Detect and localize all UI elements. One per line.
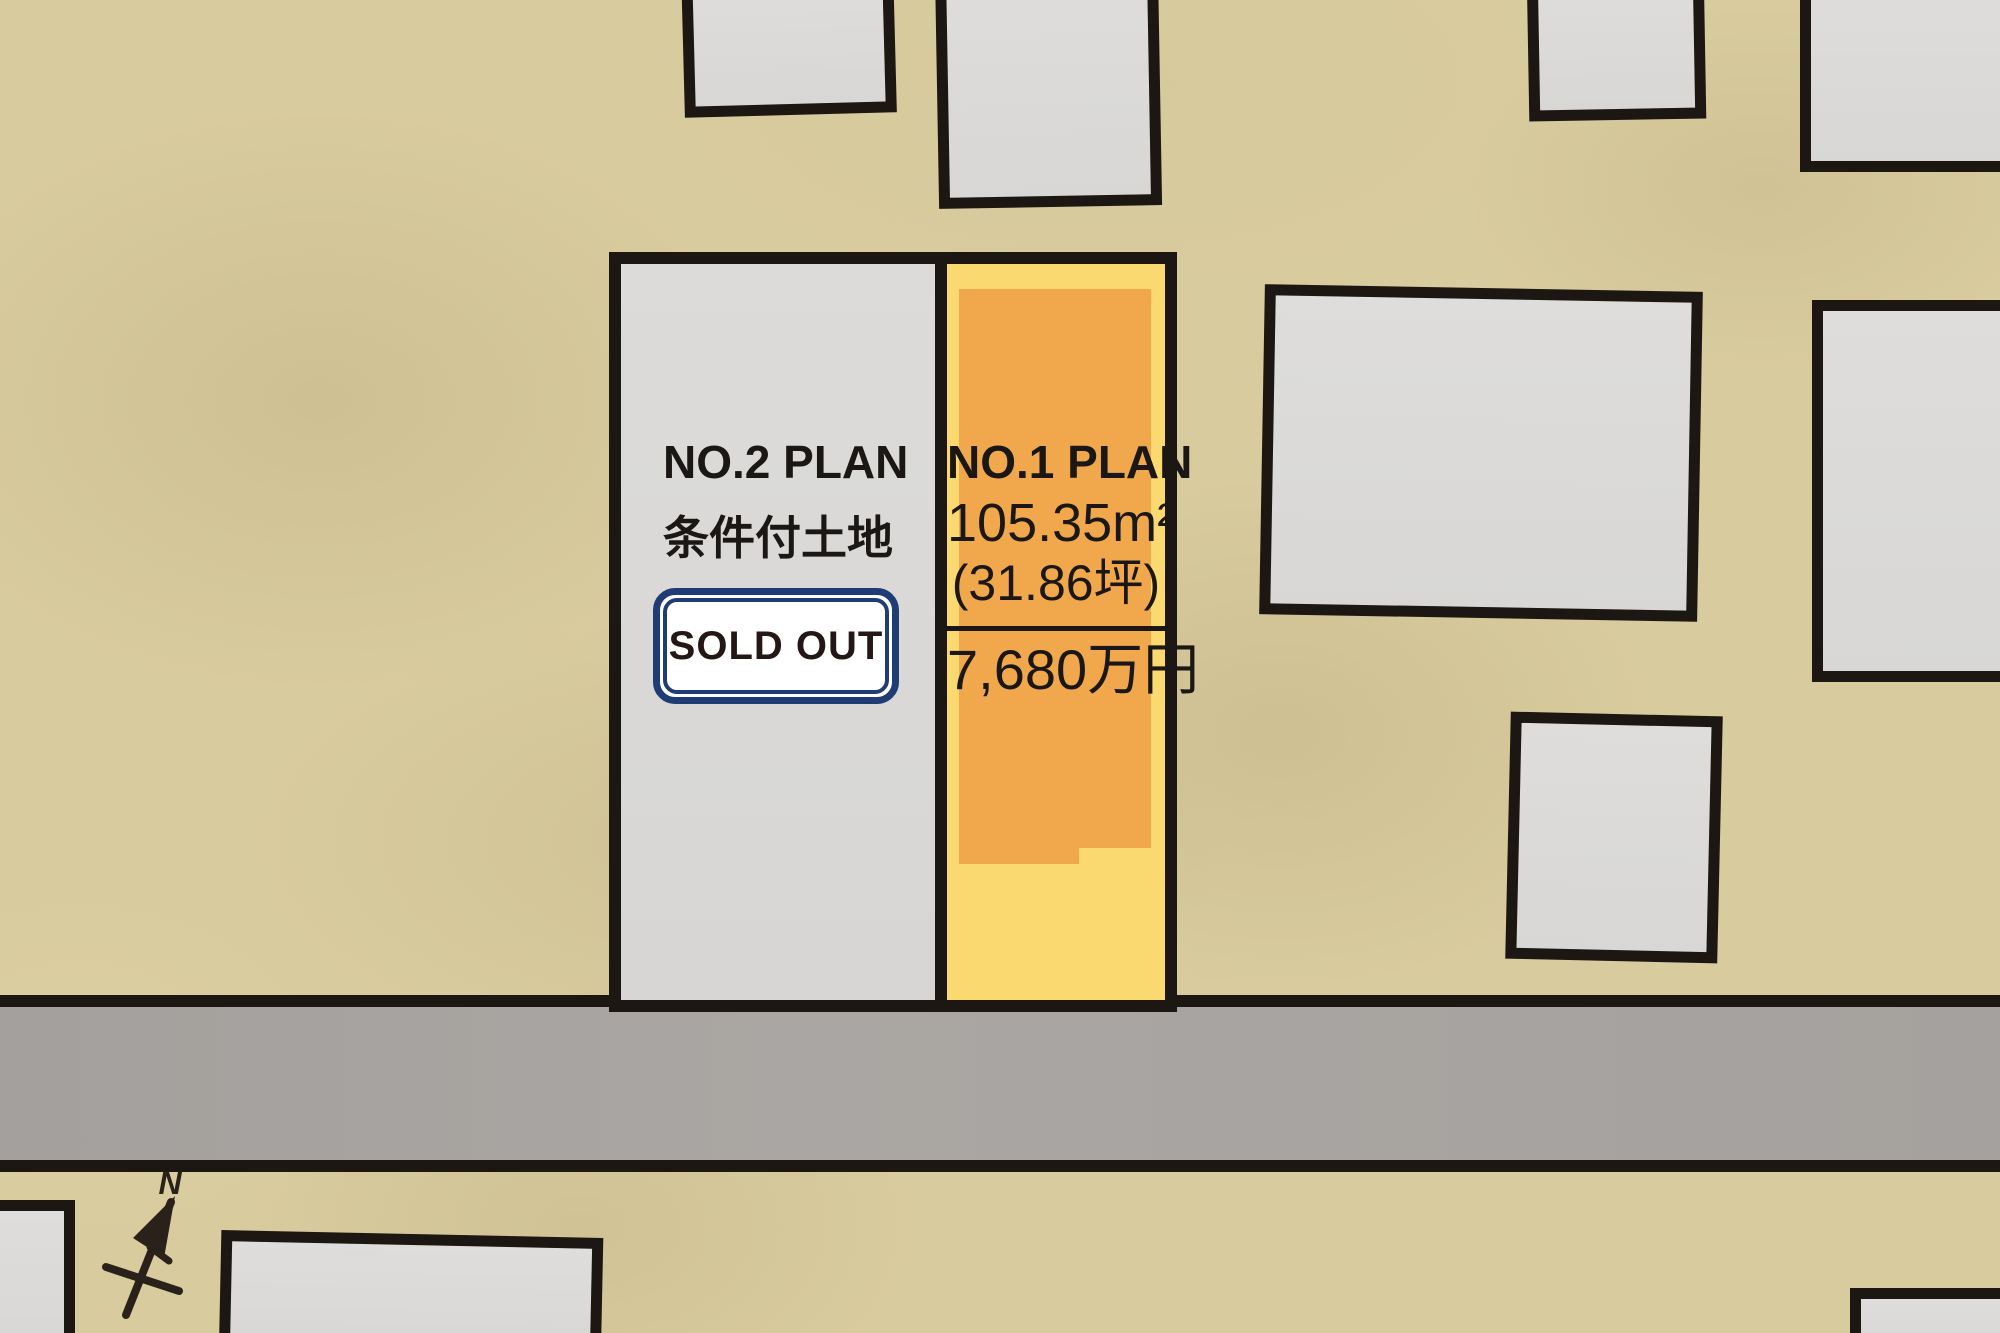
north-compass-icon: N (86, 1160, 218, 1332)
plot-no1-area-sqm: 105.35m² (947, 496, 1165, 550)
building-block (1812, 300, 2000, 682)
plot-no2[interactable]: NO.2 PLAN 条件付土地 SOLD OUT (609, 252, 947, 1012)
building-block (0, 1200, 75, 1333)
building-block (1850, 1288, 2000, 1333)
plot-no1-title: NO.1 PLAN (947, 439, 1165, 485)
price-divider-line (943, 626, 1167, 631)
plot-no2-title: NO.2 PLAN (663, 439, 908, 485)
building-block (1259, 284, 1703, 622)
land-plot-site-map: NO.2 PLAN 条件付土地 SOLD OUT NO.1 PLAN 105.3… (0, 0, 2000, 1333)
plot-no1-footprint-notch (1079, 848, 1151, 865)
building-block (681, 0, 897, 118)
building-block (1800, 0, 2000, 172)
compass-north-letter: N (158, 1165, 182, 1201)
road (0, 995, 2000, 1172)
building-block (935, 0, 1162, 209)
plot-no1-area-tsubo: (31.86坪) (947, 558, 1165, 608)
sold-out-badge-text: SOLD OUT (669, 624, 884, 669)
building-block (219, 1230, 604, 1333)
building-block (1527, 0, 1707, 122)
sold-out-badge: SOLD OUT (653, 588, 899, 704)
plot-no1[interactable]: NO.1 PLAN 105.35m² (31.86坪) 7,680万円 (935, 252, 1177, 1012)
plot-no2-condition-label: 条件付土地 (663, 515, 893, 561)
sold-out-badge-inner-frame: SOLD OUT (663, 598, 889, 694)
building-block (1505, 712, 1723, 964)
plot-no1-price: 7,680万円 (947, 642, 1165, 698)
